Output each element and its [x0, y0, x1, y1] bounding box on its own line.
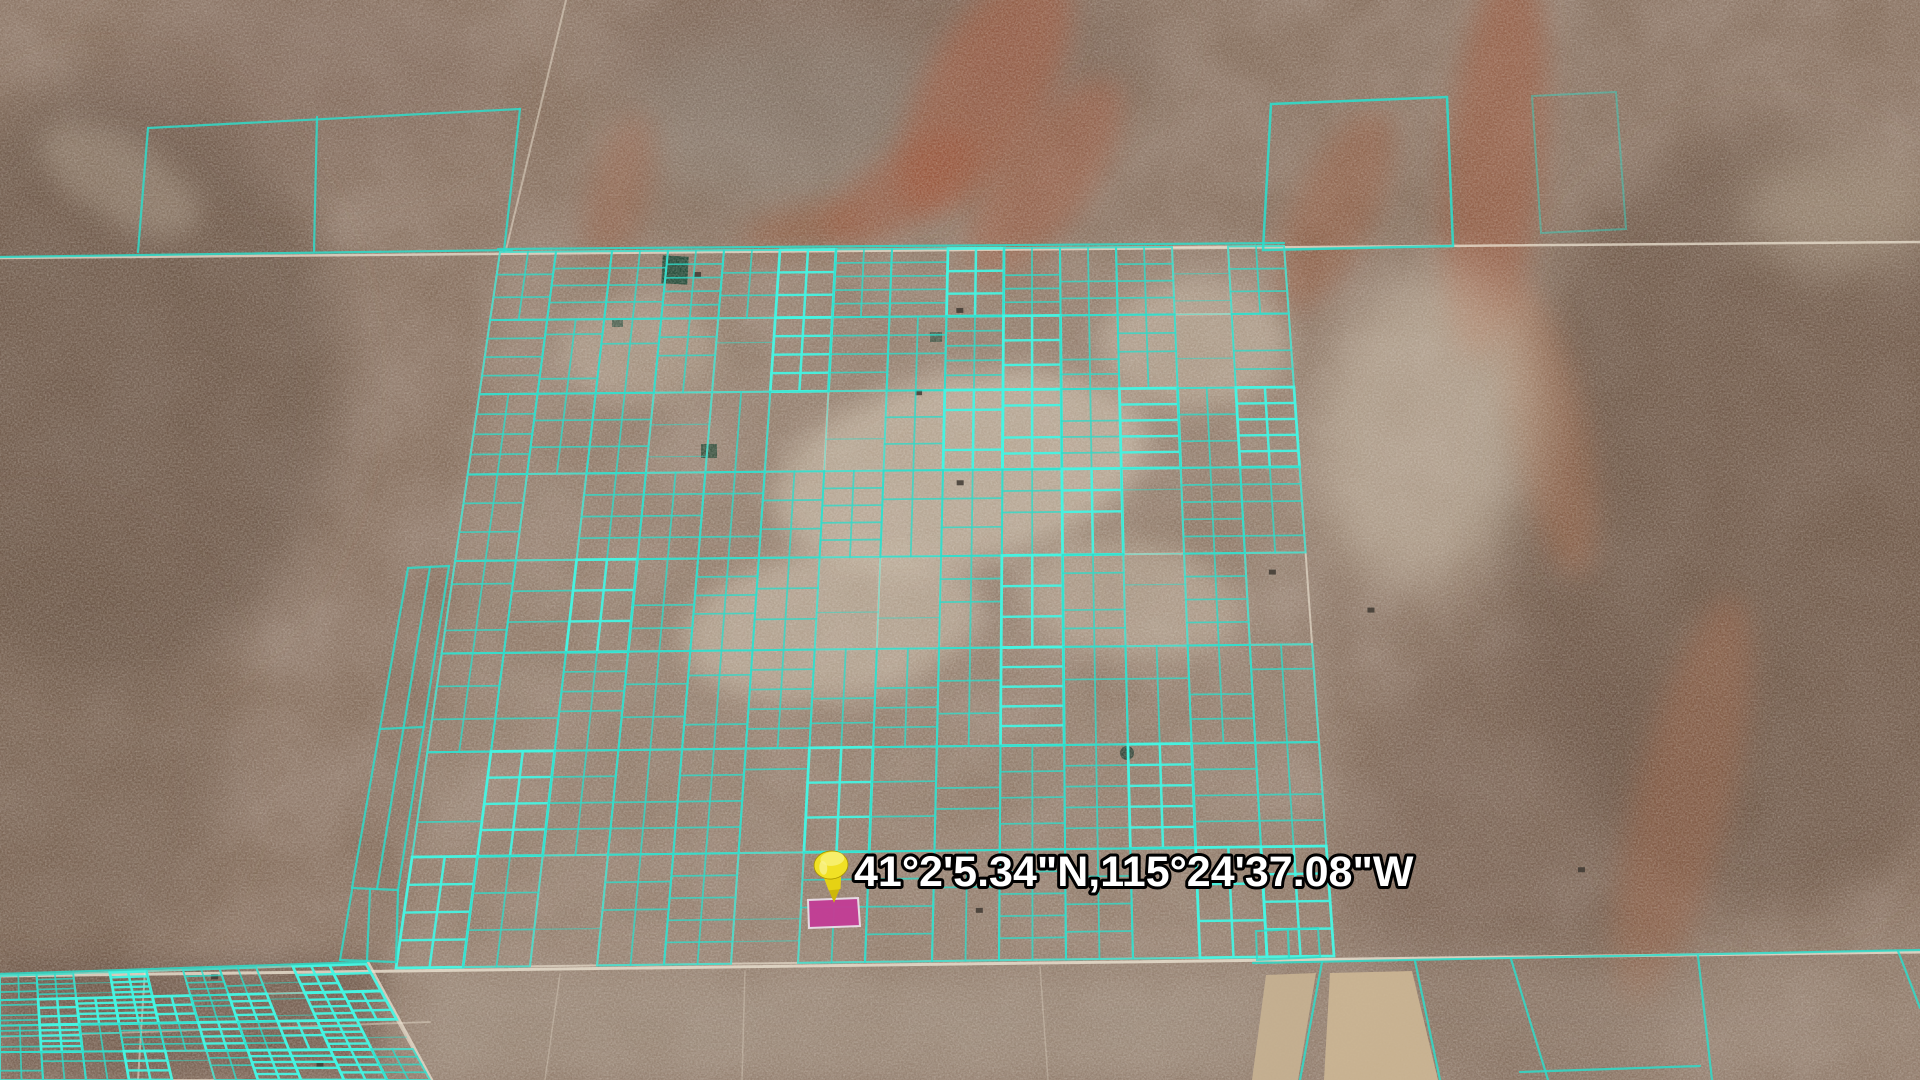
satellite-terrain: [0, 0, 1920, 1080]
cleared-field-strips: [1252, 971, 1438, 1080]
placemark-coordinate-label: 41°2'5.34"N,115°24'37.08"W: [854, 848, 1414, 896]
satellite-map-view[interactable]: 41°2'5.34"N,115°24'37.08"W: [0, 0, 1920, 1080]
